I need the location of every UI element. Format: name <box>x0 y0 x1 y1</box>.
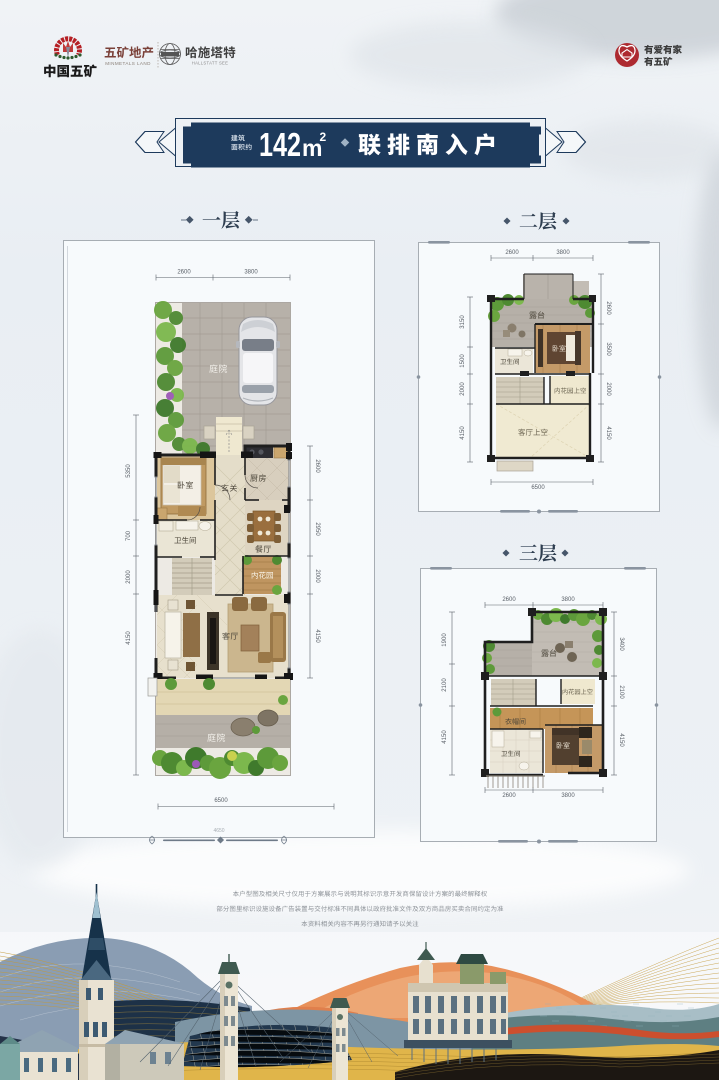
svg-text:5350: 5350 <box>126 464 132 478</box>
svg-text:3800: 3800 <box>561 793 575 799</box>
svg-text:3150: 3150 <box>460 315 466 329</box>
svg-text:3800: 3800 <box>561 597 575 603</box>
svg-text:3800: 3800 <box>244 270 258 276</box>
svg-text:3800: 3800 <box>556 250 570 256</box>
svg-text:2000: 2000 <box>605 382 611 396</box>
svg-text:4150: 4150 <box>126 631 132 645</box>
svg-text:2950: 2950 <box>314 522 320 536</box>
svg-text:4150: 4150 <box>460 426 466 440</box>
svg-text:4150: 4150 <box>442 730 448 744</box>
svg-text:142: 142 <box>259 126 301 163</box>
svg-text:2: 2 <box>320 130 327 144</box>
svg-text:4150: 4150 <box>618 733 624 747</box>
svg-text:2600: 2600 <box>314 459 320 473</box>
svg-text:2600: 2600 <box>605 301 611 315</box>
svg-text:6500: 6500 <box>214 798 228 804</box>
svg-text:2000: 2000 <box>314 569 320 583</box>
svg-text:2600: 2600 <box>502 793 516 799</box>
svg-text:2000: 2000 <box>126 570 132 584</box>
svg-text:2600: 2600 <box>505 250 519 256</box>
svg-text:2600: 2600 <box>502 597 516 603</box>
svg-text:2600: 2600 <box>177 270 191 276</box>
svg-text:MINMETALS LAND: MINMETALS LAND <box>105 61 151 66</box>
svg-text:2100: 2100 <box>618 685 624 699</box>
svg-text:700: 700 <box>126 530 132 541</box>
svg-text:3400: 3400 <box>618 637 624 651</box>
svg-text:HALLSTATT SEE: HALLSTATT SEE <box>192 61 228 66</box>
svg-text:6500: 6500 <box>531 485 545 491</box>
svg-text:1900: 1900 <box>442 633 448 647</box>
svg-text:3500: 3500 <box>605 342 611 356</box>
svg-text:2100: 2100 <box>442 678 448 692</box>
svg-text:4150: 4150 <box>314 629 320 643</box>
svg-text:2000: 2000 <box>460 382 466 396</box>
svg-text:4150: 4150 <box>605 426 611 440</box>
svg-text:1500: 1500 <box>460 354 466 368</box>
svg-text:4650: 4650 <box>213 828 224 834</box>
